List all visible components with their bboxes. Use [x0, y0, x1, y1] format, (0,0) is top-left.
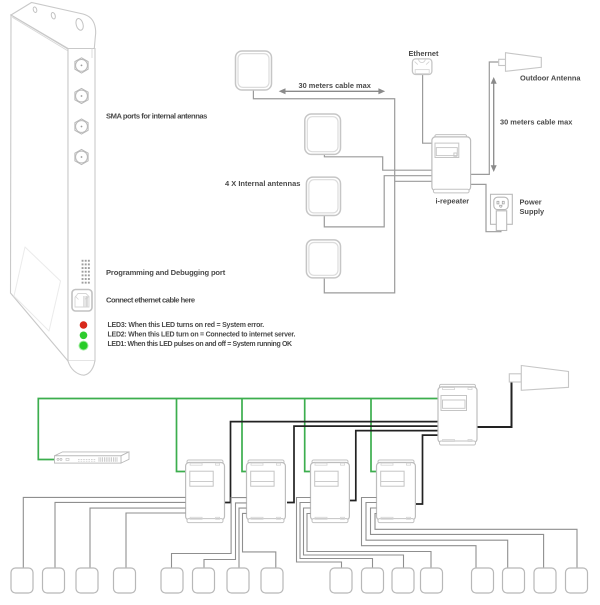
svg-text:LED1: When this LED pulses on: LED1: When this LED pulses on and off = … [108, 341, 293, 348]
svg-text:Programming and Debugging port: Programming and Debugging port [106, 268, 226, 277]
svg-text:SMA ports for internal antenna: SMA ports for internal antennas [106, 111, 207, 120]
svg-text:30 meters cable max: 30 meters cable max [299, 81, 372, 90]
svg-text:Connect ethernet cable here: Connect ethernet cable here [106, 296, 195, 305]
svg-text:Ethernet: Ethernet [409, 49, 440, 58]
svg-text:Supply: Supply [520, 207, 546, 216]
svg-text:Power: Power [520, 198, 542, 207]
svg-text:LED3: When this LED turns on: LED3: When this LED turns on red = Syste… [108, 322, 265, 329]
svg-text:LED2: When this LED turn on =: LED2: When this LED turn on = Connected … [108, 331, 296, 338]
svg-text:30 meters cable max: 30 meters cable max [500, 118, 573, 127]
svg-text:i-repeater: i-repeater [436, 197, 470, 206]
svg-text:Outdoor Antenna: Outdoor Antenna [520, 74, 581, 83]
svg-text:4 X Internal antennas: 4 X Internal antennas [225, 179, 300, 188]
